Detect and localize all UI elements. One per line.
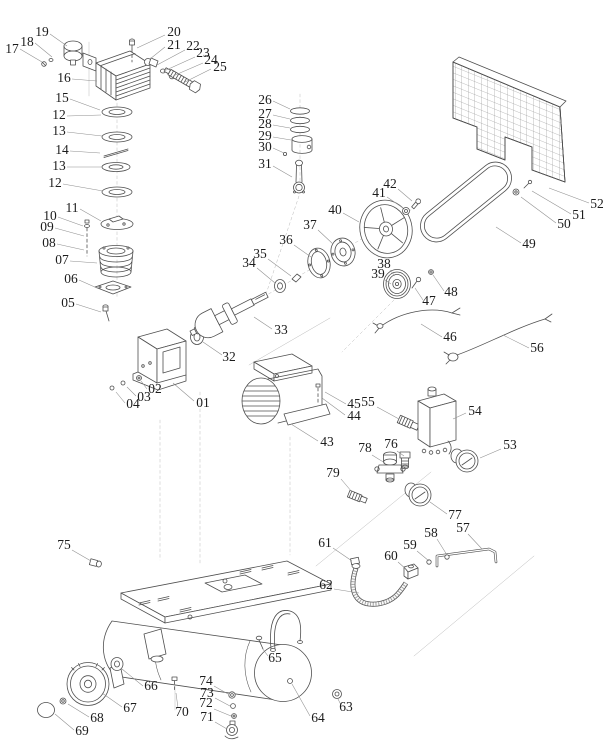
part-label-04: 04 xyxy=(126,396,140,411)
inlet-fitting xyxy=(347,490,367,504)
part-label-65: 65 xyxy=(268,650,282,665)
part-label-06: 06 xyxy=(64,271,78,286)
part-label-61: 61 xyxy=(318,535,332,550)
leader-09-24 xyxy=(55,228,84,236)
part-label-54: 54 xyxy=(468,403,482,418)
leader-15-10 xyxy=(70,99,100,110)
outlet-fitting xyxy=(397,415,419,431)
leader-17-0 xyxy=(20,49,42,62)
leader-53-57 xyxy=(480,449,501,458)
part-label-60: 60 xyxy=(384,548,398,563)
hub-cap xyxy=(38,703,55,718)
bearing-cover xyxy=(328,236,357,268)
part-label-53: 53 xyxy=(503,437,517,452)
leader-56-51 xyxy=(503,335,529,348)
leader-10-23 xyxy=(58,217,83,226)
part-label-50: 50 xyxy=(557,216,571,231)
flywheel xyxy=(354,195,418,264)
part-label-35: 35 xyxy=(253,246,267,261)
leader-21-4 xyxy=(150,47,165,59)
parts-diagram-svg: 1718192021222324251615121314131226272829… xyxy=(0,0,615,755)
leader-05-28 xyxy=(76,304,101,312)
wheel-washer xyxy=(111,658,123,671)
leader-14-13 xyxy=(70,151,100,153)
leader-31-21 xyxy=(273,166,292,177)
part-label-43: 43 xyxy=(320,434,334,449)
part-label-75: 75 xyxy=(57,537,71,552)
leader-23-6 xyxy=(164,57,195,71)
bearing-rear xyxy=(275,280,286,293)
parts-diagram-page: 1718192021222324251615121314131226272829… xyxy=(0,0,615,755)
hose-nut xyxy=(350,557,360,568)
leader-25-8 xyxy=(185,69,211,82)
part-label-62: 62 xyxy=(319,577,333,592)
outlet-pipe-bolt xyxy=(163,65,203,94)
axle-bolt xyxy=(60,698,66,704)
part-label-46: 46 xyxy=(443,329,457,344)
part-label-30: 30 xyxy=(258,139,272,154)
part-label-67: 67 xyxy=(123,700,137,715)
leader-46-50 xyxy=(421,324,442,337)
part-label-72: 72 xyxy=(199,695,213,710)
part-label-13: 13 xyxy=(52,123,66,138)
leader-36-37 xyxy=(294,245,311,257)
pulley-bolt xyxy=(412,270,433,288)
leader-12-15 xyxy=(63,184,103,191)
part-label-79: 79 xyxy=(326,465,340,480)
motor-bolt xyxy=(316,384,320,404)
part-label-14: 14 xyxy=(55,142,69,157)
part-label-12: 12 xyxy=(48,175,62,190)
leader-26-16 xyxy=(273,101,290,109)
leader-73-76 xyxy=(215,698,230,706)
leader-57-62 xyxy=(468,534,482,549)
part-label-52: 52 xyxy=(590,196,604,211)
part-label-16: 16 xyxy=(57,70,71,85)
part-label-47: 47 xyxy=(422,293,436,308)
leader-78-59 xyxy=(372,455,385,463)
filter-screw xyxy=(42,59,53,67)
leader-40-39 xyxy=(343,213,359,222)
leader-33-34 xyxy=(254,317,272,329)
leader-22-5 xyxy=(157,50,185,65)
leader-71-78 xyxy=(215,722,227,729)
case-bolt xyxy=(103,305,109,321)
leader-12-11 xyxy=(67,115,101,116)
leader-75-68 xyxy=(72,550,91,561)
part-label-58: 58 xyxy=(424,525,438,540)
part-label-36: 36 xyxy=(279,232,293,247)
leader-30-20 xyxy=(273,148,284,153)
part-label-25: 25 xyxy=(213,59,227,74)
braided-hose xyxy=(353,568,406,604)
part-label-11: 11 xyxy=(66,200,79,215)
part-label-76: 76 xyxy=(384,436,398,451)
shaft-key xyxy=(292,274,301,282)
cylinder-gasket xyxy=(95,281,131,294)
part-label-42: 42 xyxy=(383,176,397,191)
leader-45-54 xyxy=(325,392,346,404)
belt-guard xyxy=(453,57,566,182)
leader-19-2 xyxy=(50,34,67,46)
leader-18-1 xyxy=(35,43,52,57)
leader-68-72 xyxy=(68,704,89,717)
leader-42-41 xyxy=(398,189,412,201)
cover-gasket xyxy=(305,246,333,280)
leader-08-25 xyxy=(57,244,84,250)
wheel xyxy=(67,663,109,706)
leader-28-18 xyxy=(273,125,290,128)
flywheel-bolt xyxy=(411,198,422,209)
leader-67-71 xyxy=(102,693,122,707)
part-label-15: 15 xyxy=(55,90,69,105)
part-label-64: 64 xyxy=(311,710,325,725)
cylinder xyxy=(99,246,133,278)
v-belt xyxy=(414,156,518,249)
motor-pulley xyxy=(384,270,411,299)
part-label-33: 33 xyxy=(274,322,288,337)
leader-04-32 xyxy=(116,392,125,403)
part-label-39: 39 xyxy=(371,266,385,281)
part-label-09: 09 xyxy=(40,219,54,234)
leader-27-17 xyxy=(273,115,290,119)
part-label-71: 71 xyxy=(200,709,214,724)
tank-plug-63 xyxy=(333,690,342,699)
part-label-21: 21 xyxy=(167,37,181,52)
part-label-63: 63 xyxy=(339,699,353,714)
leader-69-73 xyxy=(55,714,74,730)
part-label-68: 68 xyxy=(90,710,104,725)
leader-01-29 xyxy=(173,383,194,401)
part-label-55: 55 xyxy=(361,394,375,409)
leader-29-19 xyxy=(273,137,291,140)
piston-rings xyxy=(291,108,310,133)
tank-plug-75 xyxy=(89,559,102,568)
leader-03-31 xyxy=(127,387,136,396)
part-label-31: 31 xyxy=(258,156,272,171)
piston xyxy=(292,136,312,154)
part-label-17: 17 xyxy=(5,41,19,56)
leader-20-3 xyxy=(137,35,165,48)
part-label-51: 51 xyxy=(572,207,586,222)
part-label-05: 05 xyxy=(61,295,75,310)
part-label-56: 56 xyxy=(530,340,544,355)
part-label-01: 01 xyxy=(196,395,210,410)
leader-16-9 xyxy=(72,79,97,81)
part-label-45: 45 xyxy=(347,396,361,411)
part-label-78: 78 xyxy=(358,440,372,455)
part-label-13: 13 xyxy=(52,158,66,173)
leader-59-64 xyxy=(417,551,429,561)
pressure-switch xyxy=(418,387,456,454)
connecting-rod xyxy=(294,160,305,193)
elbow-fitting xyxy=(404,564,418,579)
drain-valve-stack xyxy=(225,692,238,739)
guard-screws xyxy=(513,180,532,195)
crankcase-bolts xyxy=(110,376,142,391)
leader-55-55 xyxy=(377,407,399,419)
leader-72-77 xyxy=(214,709,231,716)
part-label-18: 18 xyxy=(20,34,34,49)
leader-35-36 xyxy=(268,259,291,276)
part-label-40: 40 xyxy=(328,202,342,217)
part-label-69: 69 xyxy=(75,723,89,738)
leader-48-45 xyxy=(433,275,444,291)
pressure-gauge xyxy=(451,449,478,472)
motor xyxy=(242,354,330,425)
leader-61-66 xyxy=(333,548,352,561)
leader-79-60 xyxy=(341,479,352,492)
leader-58-63 xyxy=(437,539,447,555)
leader-06-27 xyxy=(79,280,97,288)
leader-60-65 xyxy=(398,562,407,570)
flywheel-washer xyxy=(403,208,410,215)
part-label-57: 57 xyxy=(456,520,470,535)
part-label-08: 08 xyxy=(42,235,56,250)
part-label-32: 32 xyxy=(222,349,236,364)
tank-platform xyxy=(121,561,331,623)
part-label-70: 70 xyxy=(175,704,189,719)
leader-43-52 xyxy=(291,424,318,441)
outlet-gauge xyxy=(405,483,431,506)
part-label-19: 19 xyxy=(35,24,49,39)
part-label-12: 12 xyxy=(52,107,66,122)
leader-49-46 xyxy=(496,227,521,243)
leader-77-61 xyxy=(430,502,447,514)
part-label-59: 59 xyxy=(403,537,417,552)
leader-37-38 xyxy=(318,230,333,244)
part-label-66: 66 xyxy=(144,678,158,693)
part-label-37: 37 xyxy=(303,217,317,232)
part-label-07: 07 xyxy=(55,252,69,267)
leader-52-49 xyxy=(549,188,589,203)
leader-13-12 xyxy=(67,132,102,136)
leader-32-33 xyxy=(203,342,222,355)
leader-07-26 xyxy=(70,261,97,263)
leader-11-22 xyxy=(80,209,101,221)
head-stud xyxy=(85,220,90,256)
leader-51-48 xyxy=(532,191,571,214)
cylinder-head xyxy=(96,51,150,100)
power-cord xyxy=(444,314,552,364)
leader-50-47 xyxy=(521,197,556,223)
part-label-49: 49 xyxy=(522,236,536,251)
part-label-26: 26 xyxy=(258,92,272,107)
part-label-48: 48 xyxy=(444,284,458,299)
